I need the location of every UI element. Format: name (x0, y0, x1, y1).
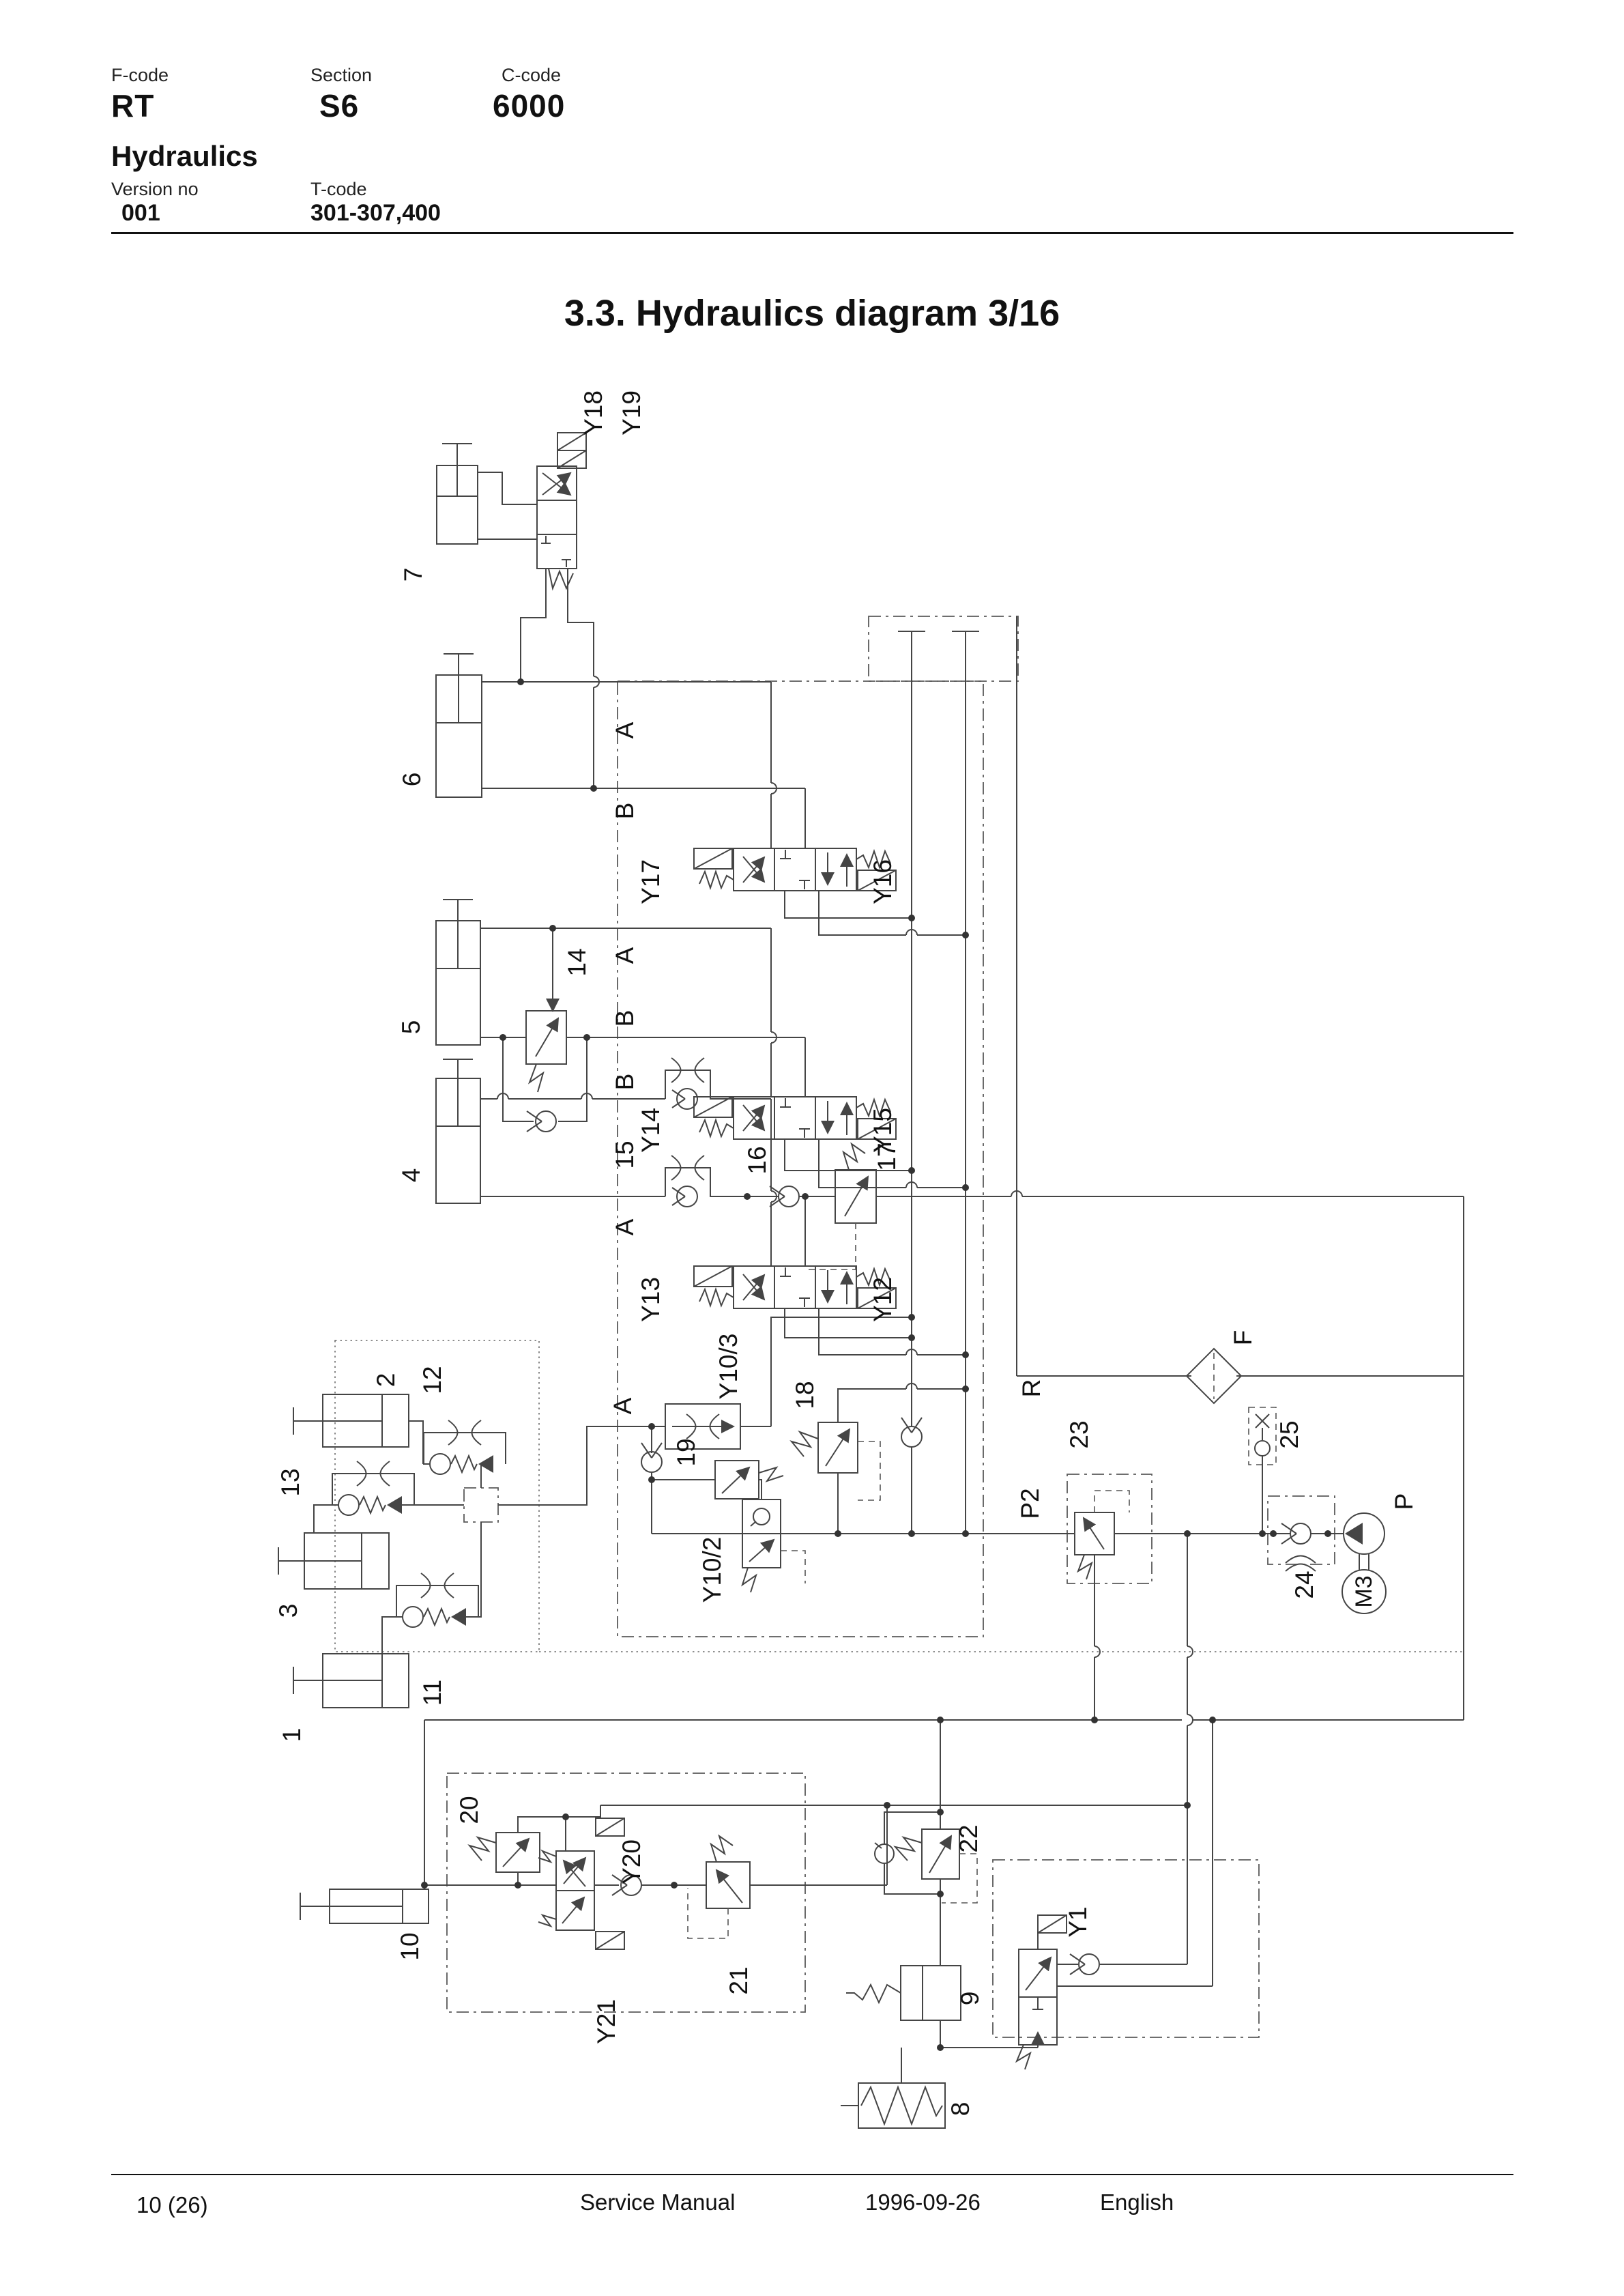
label-y1: Y1 (1064, 1906, 1092, 1937)
label-n8: 8 (946, 2102, 974, 2116)
pressure-bus (952, 631, 979, 1534)
label-n24: 24 (1290, 1570, 1318, 1598)
hydraulic-schematic: Y18 Y19 7 6 A B Y17 Y16 5 14 A B Y14 Y15… (0, 0, 1624, 2296)
label-a5: A (611, 947, 639, 964)
valve-y20-y21 (538, 1818, 624, 1949)
label-c5: 5 (397, 1020, 425, 1035)
valve-y14-y15 (694, 1097, 966, 1188)
manual-page: { "header": { "f_code_label": "F-code", … (0, 0, 1624, 2296)
pump-icon (1344, 1513, 1384, 1570)
valve24-boundary (1268, 1496, 1335, 1564)
valve-y1 (1017, 1915, 1099, 2069)
label-f: F (1229, 1330, 1257, 1346)
label-y10-2: Y10/2 (698, 1537, 726, 1603)
cylinder-4 (436, 1059, 480, 1203)
label-n14: 14 (563, 948, 591, 976)
label-c3: 3 (274, 1604, 302, 1618)
label-n18: 18 (791, 1381, 819, 1409)
label-n16: 16 (743, 1146, 771, 1174)
label-a-left: A (609, 1397, 637, 1414)
label-n25: 25 (1275, 1420, 1303, 1448)
label-y19: Y19 (618, 390, 646, 435)
component-8-spring (841, 2048, 945, 2128)
bottom-left-main-line (424, 1805, 887, 1895)
valve-23-relief (1075, 1491, 1129, 1720)
label-n9: 9 (956, 1992, 984, 2006)
label-b4: B (611, 1074, 639, 1091)
label-c2: 2 (372, 1373, 400, 1388)
label-n17: 17 (873, 1143, 901, 1171)
label-c7: 7 (399, 568, 427, 582)
filter-icon (1187, 1349, 1241, 1403)
cylinder-10 (300, 1885, 429, 1923)
label-a4: A (611, 1218, 639, 1235)
cylinder-2 (293, 1394, 409, 1447)
label-n22: 22 (955, 1824, 983, 1852)
cylinder-7 (437, 444, 478, 544)
group5-ab-lines (480, 928, 805, 1097)
valve-y18-y19 (478, 433, 599, 788)
label-n11: 11 (418, 1680, 446, 1706)
label-y10-3: Y10/3 (714, 1334, 742, 1400)
label-m3: M3 (1351, 1575, 1377, 1607)
a-line-left-group (498, 1317, 912, 1505)
label-y20: Y20 (618, 1839, 646, 1884)
label-n19: 19 (672, 1438, 700, 1466)
valve-11-throttle-check (382, 1522, 481, 1654)
cylinder-3 (278, 1533, 389, 1589)
label-c10: 10 (396, 1932, 424, 1960)
return-line (1017, 616, 1464, 1986)
tank-bus (898, 631, 925, 1534)
cylinder-5 (436, 900, 480, 1045)
cylinder-1 (293, 1654, 409, 1708)
label-n23: 23 (1065, 1420, 1093, 1448)
valve-17-relief (805, 1144, 876, 1269)
valve-y10-2 (742, 1499, 805, 1592)
label-y14: Y14 (637, 1108, 665, 1153)
valve-y17-y16 (694, 848, 966, 935)
label-n15: 15 (611, 1140, 639, 1168)
component-9-pressure-switch (846, 1966, 961, 2048)
label-y21: Y21 (592, 1999, 620, 2044)
group6-ab-lines (482, 682, 805, 848)
label-n20: 20 (455, 1796, 483, 1824)
label-y13: Y13 (637, 1277, 665, 1322)
label-c4: 4 (397, 1168, 425, 1183)
label-y16: Y16 (869, 859, 897, 904)
manifold-boundary (618, 616, 1018, 1637)
label-c6: 6 (398, 773, 426, 787)
label-b5: B (611, 1010, 639, 1027)
label-y18: Y18 (579, 390, 607, 435)
label-a6: A (611, 721, 639, 738)
valve-13-throttle-check (314, 1461, 464, 1533)
valve-20-relief (469, 1833, 540, 1885)
label-r: R (1017, 1379, 1045, 1398)
label-c1: 1 (278, 1728, 306, 1742)
cylinder-6 (436, 654, 482, 797)
label-n12: 12 (418, 1366, 446, 1394)
valve-21-relief (688, 1836, 750, 1938)
label-n21: 21 (725, 1966, 753, 1994)
diagram-labels: Y18 Y19 7 6 A B Y17 Y16 5 14 A B Y14 Y15… (274, 390, 1418, 2116)
valve-12-throttle-check (409, 1420, 506, 1488)
pilot-feed-riser (1100, 1534, 1193, 1964)
junction-block (464, 1488, 498, 1522)
label-n13: 13 (276, 1468, 304, 1496)
valve-19-relief (652, 1461, 783, 1499)
label-b6: B (611, 803, 639, 820)
label-y17: Y17 (637, 859, 665, 904)
label-p: P (1390, 1493, 1418, 1510)
label-y12: Y12 (869, 1277, 897, 1322)
label-p2: P2 (1016, 1488, 1044, 1519)
